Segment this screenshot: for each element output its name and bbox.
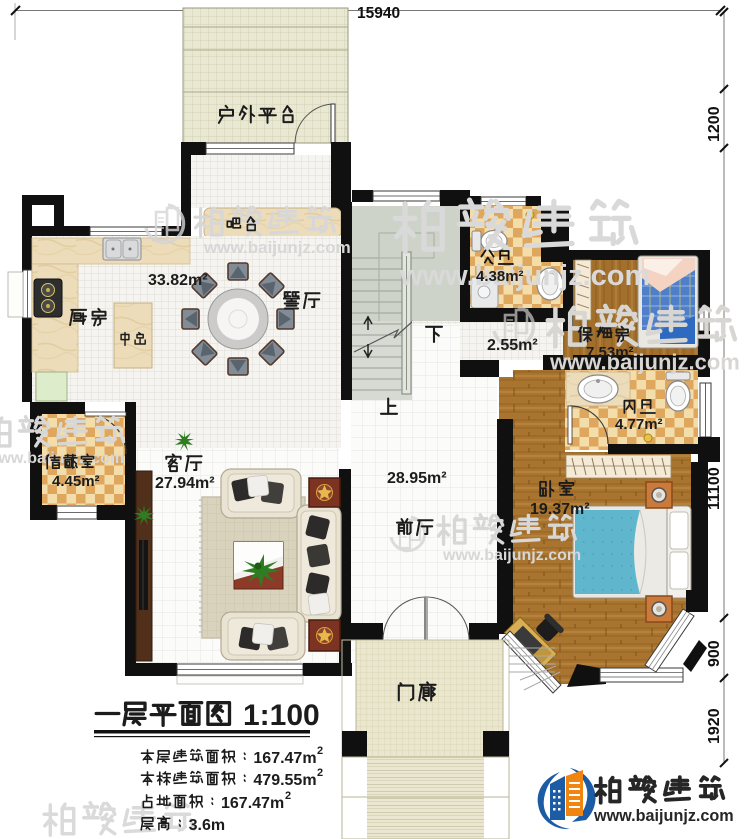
svg-text:4.38m²: 4.38m² [476, 268, 524, 285]
svg-text:www.baijunjz.com: www.baijunjz.com [0, 450, 124, 467]
svg-text:4.77m²: 4.77m² [615, 416, 663, 433]
svg-text:479.55m: 479.55m [253, 772, 316, 789]
svg-text:3.6m: 3.6m [189, 817, 225, 834]
svg-text:1920: 1920 [706, 708, 723, 744]
svg-text:167.47m: 167.47m [221, 795, 284, 812]
svg-text:www.baijunjz.com: www.baijunjz.com [442, 547, 581, 564]
svg-text:1200: 1200 [706, 106, 723, 142]
svg-text:33.82m²: 33.82m² [148, 272, 208, 289]
svg-text:28.95m²: 28.95m² [387, 470, 447, 487]
svg-text:900: 900 [706, 640, 723, 667]
svg-text:www.baijunjz.com: www.baijunjz.com [549, 350, 740, 375]
svg-text:7.53m²: 7.53m² [586, 344, 634, 361]
svg-text:11100: 11100 [706, 467, 723, 510]
svg-text:167.47m: 167.47m [253, 750, 316, 767]
svg-text:2: 2 [317, 745, 323, 757]
svg-text:www.baijunjz.com: www.baijunjz.com [203, 238, 351, 257]
svg-text:www.baijunjz.com: www.baijunjz.com [593, 807, 734, 825]
svg-text:15940: 15940 [357, 5, 400, 22]
svg-text:2: 2 [317, 767, 323, 779]
svg-text:19.37m²: 19.37m² [530, 501, 590, 518]
svg-text:4.45m²: 4.45m² [52, 473, 100, 490]
svg-text:1:100: 1:100 [243, 699, 320, 732]
svg-text:www.baijunjz.com: www.baijunjz.com [399, 260, 650, 292]
svg-text:2.55m²: 2.55m² [487, 337, 538, 354]
svg-text:27.94m²: 27.94m² [155, 475, 215, 492]
svg-text:2: 2 [285, 790, 291, 802]
